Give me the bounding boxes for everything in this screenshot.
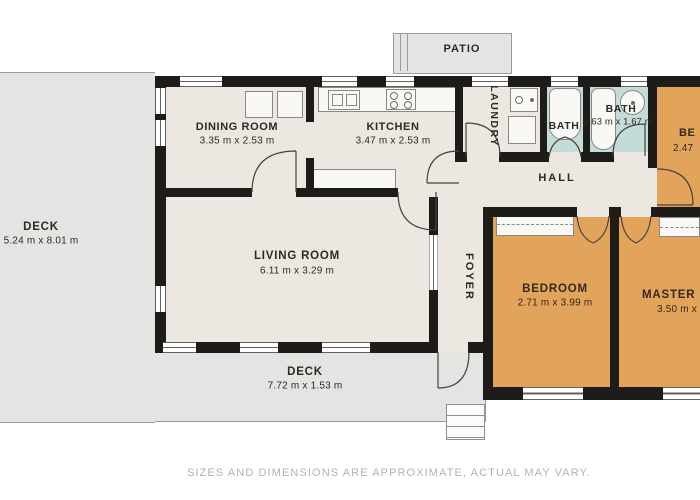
wall-segment <box>468 342 493 353</box>
bath-1-label: BATH <box>549 120 580 132</box>
dining-cabinet-icon <box>245 91 273 118</box>
wall-segment <box>583 387 663 400</box>
wall-segment <box>581 152 614 162</box>
wall-segment <box>455 152 467 162</box>
living-room-dims: 6.11 m x 3.29 m <box>260 266 334 277</box>
floor-plan: PATIO DINING ROOM 3.35 m x 2.53 m KITCHE… <box>0 0 700 500</box>
kitchen-dims: 3.47 m x 2.53 m <box>356 136 431 147</box>
wall-segment <box>429 197 438 235</box>
wall-segment <box>155 76 700 87</box>
wall-segment <box>306 87 314 122</box>
closet-icon <box>659 217 700 237</box>
deck-stairs-icon <box>446 404 485 440</box>
laundry-tub-icon <box>508 116 536 144</box>
wall-segment <box>540 87 547 152</box>
wall-segment <box>314 188 398 197</box>
window-icon <box>180 76 222 87</box>
dining-cabinet-icon <box>277 91 303 118</box>
wall-segment <box>651 207 700 217</box>
wall-segment <box>483 207 493 400</box>
window-icon <box>386 76 414 87</box>
wall-segment <box>370 342 437 353</box>
bedroom-top-right-label: BE <box>679 127 695 139</box>
bath-2-label: BATH <box>606 103 637 115</box>
washer-icon <box>510 88 538 112</box>
wall-segment <box>487 387 523 400</box>
foyer-label: FOYER <box>463 253 475 301</box>
patio-steps-icon <box>394 34 414 71</box>
window-icon <box>551 76 578 87</box>
disclaimer-text: SIZES AND DIMENSIONS ARE APPROXIMATE, AC… <box>187 467 591 479</box>
kitchen-label: KITCHEN <box>366 121 419 133</box>
window-icon <box>155 286 166 312</box>
deck-left-label: DECK <box>23 221 59 233</box>
bedroom-top-right-dims: 2.47 <box>673 143 693 154</box>
wall-segment <box>610 217 619 400</box>
wall-segment <box>196 342 240 353</box>
closet-icon <box>496 214 574 236</box>
wall-segment <box>487 207 577 217</box>
window-icon <box>240 342 278 353</box>
window-icon <box>155 88 166 114</box>
wall-segment <box>296 188 314 197</box>
window-icon <box>155 120 166 146</box>
bedroom-dims: 2.71 m x 3.99 m <box>518 298 593 309</box>
bathtub-icon <box>549 88 581 140</box>
master-bedroom-dims: 3.50 m x <box>657 304 697 315</box>
wall-segment <box>609 207 621 217</box>
deck-left-dims: 5.24 m x 8.01 m <box>4 236 79 247</box>
window-icon <box>322 342 370 353</box>
deck-left <box>0 72 155 423</box>
wall-segment <box>455 87 463 152</box>
hall-label: HALL <box>538 172 575 184</box>
deck-bottom-dims: 7.72 m x 1.53 m <box>268 381 343 392</box>
window-icon <box>163 342 196 353</box>
deck-bottom-label: DECK <box>287 366 323 378</box>
window-icon <box>663 387 700 400</box>
bath-2-dims: 1.63 m x 1.67 m <box>583 117 653 128</box>
stove-icon <box>386 89 416 110</box>
wall-segment <box>155 342 163 353</box>
bedroom-label: BEDROOM <box>522 283 588 295</box>
patio-label: PATIO <box>444 43 481 55</box>
window-icon <box>322 76 357 87</box>
dining-room-dims: 3.35 m x 2.53 m <box>200 136 275 147</box>
window-icon <box>429 235 438 290</box>
dining-room-label: DINING ROOM <box>196 121 278 133</box>
master-bedroom-floor <box>619 217 700 387</box>
wall-segment <box>499 152 549 162</box>
window-icon <box>621 76 647 87</box>
kitchen-peninsula-counter <box>312 169 396 189</box>
living-room-label: LIVING ROOM <box>254 250 340 262</box>
sink-icon <box>328 90 360 110</box>
wall-segment <box>155 188 252 197</box>
laundry-label: LAUNDRY <box>488 85 500 146</box>
window-icon <box>523 387 583 400</box>
wall-segment <box>278 342 322 353</box>
master-bedroom-label: MASTER BE <box>642 289 700 301</box>
